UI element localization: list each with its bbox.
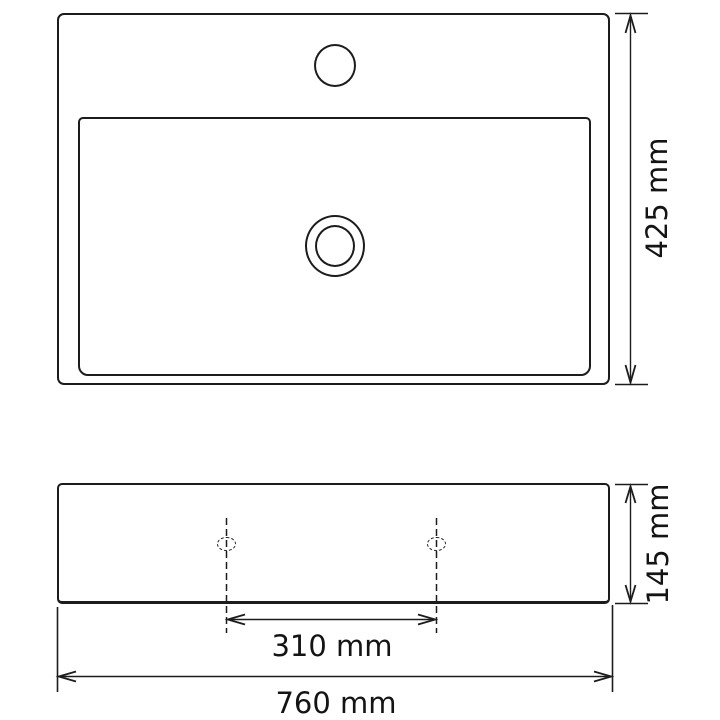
arrow-up-icon <box>626 16 636 34</box>
dimension-310 <box>228 615 436 625</box>
arrow-down-icon <box>626 585 636 602</box>
arrow-left-icon <box>59 672 76 682</box>
dimension-label-425: 425 mm <box>640 137 674 258</box>
technical-drawing-canvas: 425 mm 145 mm 310 mm 760 mm <box>0 0 720 720</box>
faucet-hole <box>314 44 356 87</box>
arrow-up-icon <box>626 487 636 504</box>
front-view-outline <box>57 483 610 604</box>
mounting-hole-right <box>427 537 446 551</box>
mounting-hole-left <box>217 537 236 551</box>
arrow-right-icon <box>418 615 435 625</box>
drain-hole-inner-ring <box>315 225 355 267</box>
arrow-down-icon <box>626 365 636 383</box>
dimension-label-760: 760 mm <box>275 686 396 720</box>
arrow-left-icon <box>228 615 245 625</box>
arrow-right-icon <box>594 672 611 682</box>
dimension-label-310: 310 mm <box>271 629 392 663</box>
dimension-label-145: 145 mm <box>641 483 675 604</box>
